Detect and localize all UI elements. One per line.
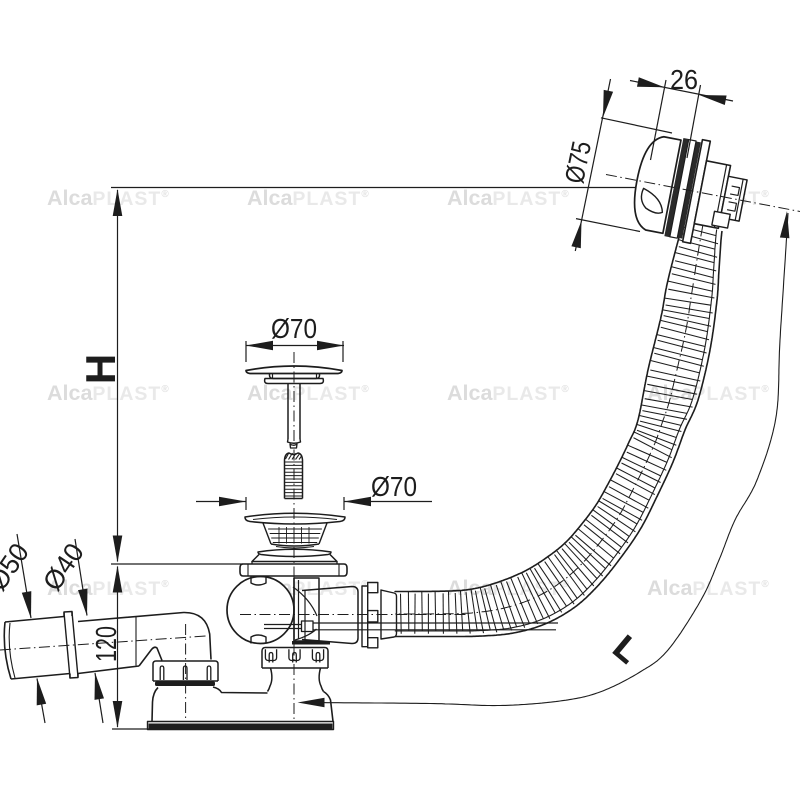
- svg-text:AlcaPLAST®: AlcaPLAST®: [647, 576, 769, 600]
- svg-text:AlcaPLAST®: AlcaPLAST®: [47, 186, 169, 210]
- svg-text:Ø50: Ø50: [0, 538, 35, 596]
- svg-text:120: 120: [91, 626, 123, 662]
- svg-text:Ø75: Ø75: [559, 139, 597, 186]
- svg-text:AlcaPLAST®: AlcaPLAST®: [247, 186, 369, 210]
- svg-text:AlcaPLAST®: AlcaPLAST®: [447, 186, 569, 210]
- svg-text:AlcaPLAST®: AlcaPLAST®: [447, 381, 569, 405]
- svg-text:AlcaPLAST®: AlcaPLAST®: [447, 576, 569, 600]
- svg-text:L: L: [606, 628, 646, 670]
- svg-text:26: 26: [670, 64, 698, 95]
- svg-text:AlcaPLAST®: AlcaPLAST®: [247, 381, 369, 405]
- svg-text:H: H: [77, 354, 124, 384]
- svg-text:AlcaPLAST®: AlcaPLAST®: [647, 381, 769, 405]
- svg-text:Ø70: Ø70: [271, 313, 317, 344]
- svg-text:Ø70: Ø70: [371, 471, 417, 502]
